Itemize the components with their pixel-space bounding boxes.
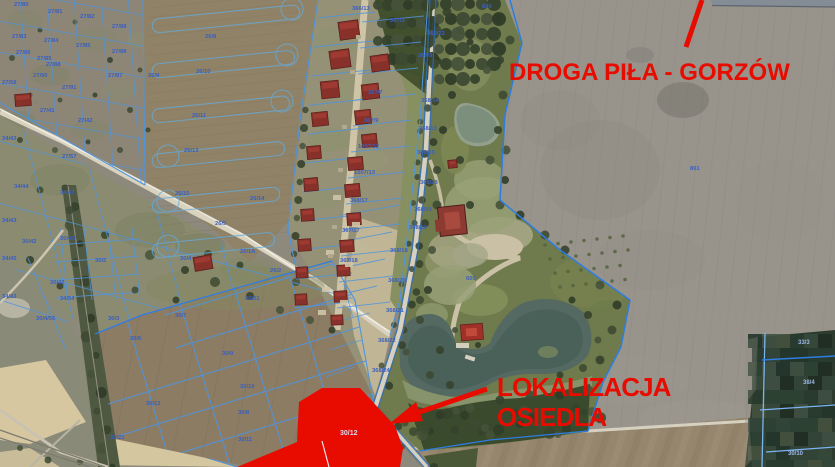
svg-text:26/1A: 26/1A xyxy=(240,249,256,255)
svg-text:368/13: 368/13 xyxy=(419,126,438,132)
svg-text:368/21: 368/21 xyxy=(386,308,405,314)
svg-text:368/23: 368/23 xyxy=(427,31,446,37)
svg-text:27/42: 27/42 xyxy=(78,118,93,124)
svg-text:368/19: 368/19 xyxy=(414,207,433,213)
svg-text:26/21: 26/21 xyxy=(245,296,260,302)
svg-text:27/81: 27/81 xyxy=(48,9,63,15)
svg-text:34/54: 34/54 xyxy=(60,296,75,302)
svg-text:368/10: 368/10 xyxy=(409,225,427,231)
svg-text:1007/13: 1007/13 xyxy=(354,170,376,176)
svg-text:30/9: 30/9 xyxy=(222,351,234,357)
svg-text:27/86: 27/86 xyxy=(16,50,31,56)
svg-text:367/9: 367/9 xyxy=(418,53,433,59)
svg-text:30/4/56: 30/4/56 xyxy=(36,316,56,322)
svg-text:34/43: 34/43 xyxy=(2,294,17,300)
svg-text:30/42: 30/42 xyxy=(50,280,65,286)
svg-text:1007/12: 1007/12 xyxy=(358,144,379,150)
svg-text:30/4/2: 30/4/2 xyxy=(60,236,76,242)
svg-text:26/2: 26/2 xyxy=(270,268,281,274)
svg-text:30/2: 30/2 xyxy=(95,258,106,264)
svg-text:30/10: 30/10 xyxy=(788,451,804,457)
svg-text:30/12: 30/12 xyxy=(340,430,358,437)
svg-text:34/43: 34/43 xyxy=(2,218,17,224)
svg-text:27/58: 27/58 xyxy=(2,80,17,86)
svg-text:368/18: 368/18 xyxy=(390,248,409,254)
svg-text:34/43: 34/43 xyxy=(2,136,17,142)
svg-text:861: 861 xyxy=(690,166,700,172)
svg-text:26/15: 26/15 xyxy=(175,191,190,197)
svg-text:27/88: 27/88 xyxy=(112,24,127,30)
svg-text:30/13: 30/13 xyxy=(146,401,161,407)
svg-text:367/18: 367/18 xyxy=(340,258,359,264)
svg-text:27/85: 27/85 xyxy=(76,43,91,49)
svg-text:34/47: 34/47 xyxy=(60,190,75,196)
svg-text:27/80: 27/80 xyxy=(14,2,29,8)
svg-text:27/84: 27/84 xyxy=(44,38,59,44)
svg-text:26/8: 26/8 xyxy=(205,34,217,40)
svg-text:26/14: 26/14 xyxy=(250,196,265,202)
svg-text:367/3: 367/3 xyxy=(390,18,405,24)
svg-text:368/17: 368/17 xyxy=(350,198,368,204)
svg-text:367/7: 367/7 xyxy=(368,90,383,96)
svg-text:26/11: 26/11 xyxy=(192,113,207,119)
svg-text:30/11: 30/11 xyxy=(238,437,253,443)
svg-text:27/87: 27/87 xyxy=(108,73,123,79)
svg-text:27/91: 27/91 xyxy=(62,85,77,91)
svg-text:368/28: 368/28 xyxy=(420,180,439,186)
svg-text:26/9: 26/9 xyxy=(148,73,160,79)
svg-text:34/45: 34/45 xyxy=(2,256,17,262)
svg-text:600: 600 xyxy=(466,276,476,282)
svg-text:840: 840 xyxy=(482,4,492,10)
svg-text:38/4: 38/4 xyxy=(803,380,815,386)
svg-text:26/10: 26/10 xyxy=(196,69,211,75)
svg-text:366/13: 366/13 xyxy=(352,6,371,12)
svg-text:30/4: 30/4 xyxy=(180,256,192,262)
svg-text:27/83: 27/83 xyxy=(12,34,27,40)
svg-text:27/90: 27/90 xyxy=(33,73,48,79)
svg-text:27/88: 27/88 xyxy=(46,62,61,68)
svg-text:368/14: 368/14 xyxy=(421,98,440,104)
svg-text:367/9: 367/9 xyxy=(364,118,379,124)
svg-text:26/5: 26/5 xyxy=(215,221,227,227)
svg-text:368/15: 368/15 xyxy=(417,150,436,156)
svg-text:30/42: 30/42 xyxy=(22,239,37,245)
svg-text:368/22: 368/22 xyxy=(378,338,396,344)
svg-text:367/17: 367/17 xyxy=(342,228,360,234)
svg-text:30/5: 30/5 xyxy=(130,336,142,342)
svg-text:DROGA PIŁA - GORZÓW: DROGA PIŁA - GORZÓW xyxy=(509,58,790,86)
svg-text:OSIEDLA: OSIEDLA xyxy=(497,402,607,432)
svg-text:27/57: 27/57 xyxy=(62,154,77,160)
svg-text:30/10: 30/10 xyxy=(240,384,255,390)
svg-text:33/3: 33/3 xyxy=(798,340,810,346)
svg-text:26/13: 26/13 xyxy=(184,148,199,154)
svg-text:34/44: 34/44 xyxy=(14,184,29,190)
svg-text:30/21: 30/21 xyxy=(110,435,125,441)
svg-text:LOKALIZACJA: LOKALIZACJA xyxy=(497,372,672,402)
svg-text:368/20: 368/20 xyxy=(388,278,406,284)
svg-text:30/8: 30/8 xyxy=(238,410,250,416)
svg-text:30/3: 30/3 xyxy=(108,316,120,322)
svg-text:27/82: 27/82 xyxy=(80,14,95,20)
svg-text:27/88: 27/88 xyxy=(112,49,127,55)
svg-text:368/24: 368/24 xyxy=(372,368,391,374)
svg-text:30/7: 30/7 xyxy=(175,313,186,319)
svg-text:27/41: 27/41 xyxy=(40,108,55,114)
